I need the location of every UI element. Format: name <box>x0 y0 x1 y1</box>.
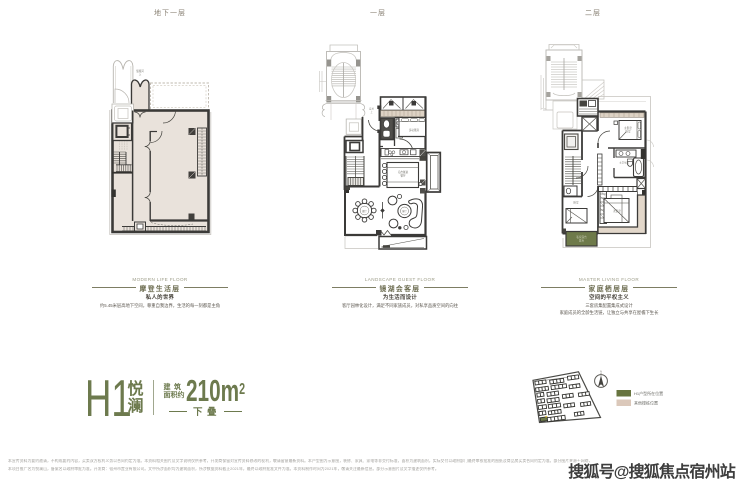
svg-text:主卫生间: 主卫生间 <box>619 161 629 165</box>
svg-text:储藏间: 储藏间 <box>136 69 144 73</box>
svg-text:N: N <box>600 370 602 374</box>
svg-text:岛台餐桌: 岛台餐桌 <box>398 170 409 174</box>
svg-text:客厅: 客厅 <box>402 209 407 213</box>
svg-text:其他楼栋位置: 其他楼栋位置 <box>634 400 658 406</box>
svg-text:餐厅: 餐厅 <box>362 209 367 213</box>
svg-text:私家露台: 私家露台 <box>576 235 587 239</box>
svg-text:上: 上 <box>139 73 142 77</box>
svg-text:多功能房: 多功能房 <box>409 128 420 132</box>
svg-text:卧室: 卧室 <box>625 130 631 134</box>
svg-text:卧室: 卧室 <box>573 201 579 205</box>
svg-text:主卧室: 主卧室 <box>624 126 632 130</box>
svg-text:次卧室: 次卧室 <box>613 209 621 213</box>
svg-text:H1户型所在位置: H1户型所在位置 <box>634 390 663 396</box>
svg-text:餐厅: 餐厅 <box>400 173 406 177</box>
svg-text:露台: 露台 <box>579 238 585 242</box>
